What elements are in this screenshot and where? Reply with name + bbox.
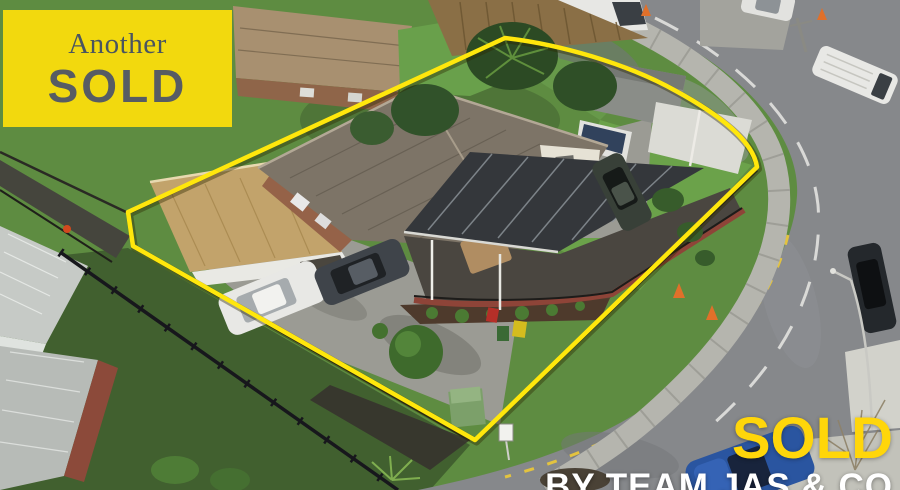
yellow-bin [512,320,527,338]
sold-badge: Another SOLD [3,10,232,127]
badge-line1: Another [68,28,167,61]
footer-sold-text: SOLD [732,410,893,468]
agency-signature: SOLD BY TEAM JAS & CO [545,410,893,490]
orange-flag [63,225,71,233]
window [300,88,315,98]
shrub [372,323,388,339]
window [348,93,363,103]
sold-listing-photo: Another SOLD SOLD BY TEAM JAS & CO [0,0,900,490]
green-bin [497,326,509,341]
badge-line2: SOLD [48,63,188,109]
footer-byline-text: BY TEAM JAS & CO [545,469,893,490]
bush-highlight [395,331,421,357]
utility-box [448,386,486,427]
